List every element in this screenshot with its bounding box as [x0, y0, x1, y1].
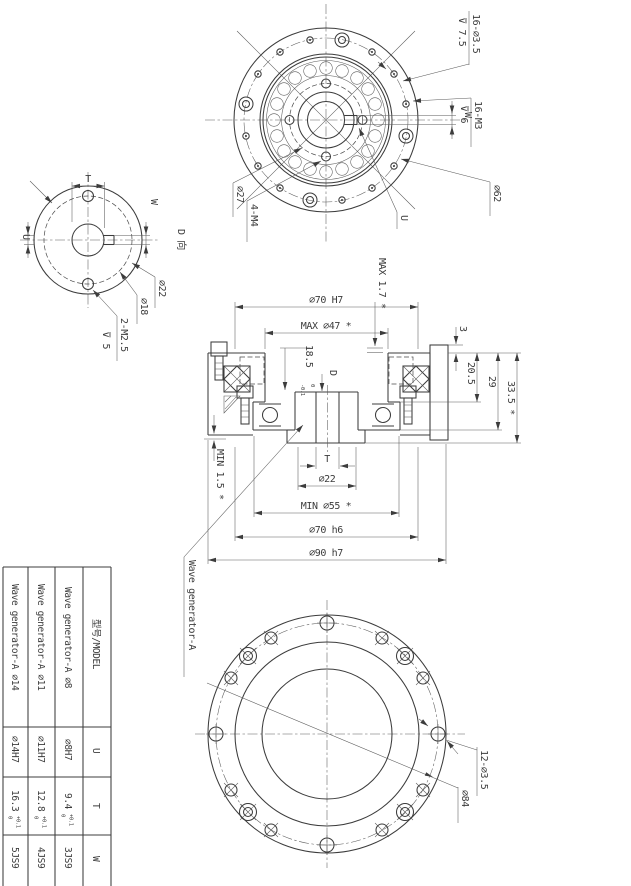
- table-cell-t-tol-dn: 0: [33, 816, 39, 819]
- front-bearing-dia-label: ⌀62: [491, 185, 502, 202]
- front-view: W 16-⌀3.5 ⊽ 7.5 16-M3 ⊽ 6 ⌀62 U ⌀27 4-M4: [205, 4, 502, 244]
- section-22-dim: ⌀22: [319, 474, 336, 485]
- rear-view: 12-⌀3.5 ⌀84: [195, 600, 489, 868]
- table-header-model: 型号/MODEL: [90, 619, 101, 670]
- drawing-canvas: W 16-⌀3.5 ⊽ 7.5 16-M3 ⊽ 6 ⌀62 U ⌀27 4-M4: [0, 0, 631, 886]
- section-185-tol-up: 0: [309, 384, 315, 387]
- section-flange-dim: ⌀90 h7: [309, 548, 343, 559]
- front-tapped-depth-label: ⊽ 6: [458, 105, 469, 124]
- d-view-tapped-depth-label: ⊽ 5: [100, 331, 111, 350]
- section-min55-dim: MIN ⌀55 *: [301, 501, 352, 512]
- section-max47-dim: MAX ⌀47 *: [301, 321, 352, 332]
- rear-holes-label: 12-⌀3.5: [478, 750, 489, 790]
- table-cell-t: 9.4: [62, 793, 73, 810]
- table-cell-u: ⌀8H7: [62, 739, 73, 760]
- drawing-sheet: W 16-⌀3.5 ⊽ 7.5 16-M3 ⊽ 6 ⌀62 U ⌀27 4-M4: [0, 0, 631, 886]
- table-cell-t-tol-up: +0.1: [15, 816, 21, 828]
- d-view: T W U ⌀22 ⌀18 2-M2.5 ⊽ 5 D 向: [20, 172, 188, 361]
- section-205-dim: 20.5: [465, 362, 476, 385]
- section-t-dim: T: [324, 454, 330, 465]
- table-header-t: T: [90, 803, 101, 809]
- section-min15-dim: MIN 1.5 *: [214, 449, 225, 500]
- front-tapped4-label: 4-M4: [248, 204, 259, 227]
- table-cell-u: ⌀11H7: [35, 736, 46, 763]
- table-row: Wave generator-A ⌀8 ⌀8H7 9.4 +0.1 0 3JS9: [60, 587, 74, 869]
- table-cell-t-tol-up: +0.1: [68, 814, 74, 826]
- table-cell-model: Wave generator-A ⌀8: [62, 587, 73, 689]
- table-cell-t-tol-up: +0.1: [41, 816, 47, 828]
- table-header-w: W: [90, 856, 101, 862]
- d-view-tapped-label: 2-M2.5: [118, 318, 129, 352]
- section-max17-dim: MAX 1.7 *: [376, 258, 387, 309]
- section-plate3-dim: 3: [457, 326, 468, 332]
- section-335-dim: 33.5 *: [505, 381, 516, 415]
- table-cell-w: 4JS9: [35, 847, 46, 869]
- d-view-t-label: T: [85, 174, 91, 185]
- section-185-tol-dn: -0.1: [299, 384, 305, 396]
- section-bore-dim: ⌀70 H7: [309, 295, 343, 306]
- rear-bolt-circle-label: ⌀84: [459, 790, 470, 807]
- table-cell-w: 3JS9: [62, 847, 73, 869]
- table-cell-u: ⌀14H7: [9, 736, 20, 763]
- section-view-d-label: D: [327, 370, 338, 376]
- section-29-dim: 29: [486, 376, 497, 388]
- table-cell-t: 12.8: [35, 790, 46, 812]
- d-view-w-label: W: [148, 199, 159, 206]
- d-view-pitch-dia-label: ⌀18: [138, 298, 149, 315]
- front-tapped-label: 16-M3: [472, 101, 483, 129]
- section-185-dim: 18.5: [303, 345, 314, 368]
- table-cell-t-tol-dn: 0: [7, 816, 13, 819]
- d-view-title: D 向: [175, 229, 188, 250]
- front-holes-depth-label: ⊽ 7.5: [456, 17, 467, 47]
- section-spigot-dim: ⌀70 h6: [309, 525, 343, 536]
- front-keyway-u-label: U: [398, 215, 409, 221]
- table-header-u: U: [90, 748, 101, 754]
- section-callout: Wave generator-A: [186, 560, 197, 650]
- table-cell-model: Wave generator-A ⌀14: [9, 584, 20, 691]
- section-view: ⌀70 H7 MAX ⌀47 * MAX 1.7 * 18.5 0 -0.1 D…: [184, 258, 521, 677]
- front-holes-label: 16-⌀3.5: [470, 14, 481, 54]
- table-cell-w: 5JS9: [9, 847, 20, 869]
- d-view-u-label: U: [20, 234, 31, 240]
- table-cell-t: 16.3: [9, 790, 20, 811]
- d-view-hub-dia-label: ⌀22: [156, 280, 167, 297]
- table-cell-model: Wave generator-A ⌀11: [35, 584, 46, 691]
- front-pitch-dia-label: ⌀27: [234, 186, 245, 203]
- spec-table: 型号/MODEL U T W Wave generator-A ⌀8 ⌀8H7 …: [3, 567, 111, 886]
- table-cell-t-tol-dn: 0: [60, 814, 66, 817]
